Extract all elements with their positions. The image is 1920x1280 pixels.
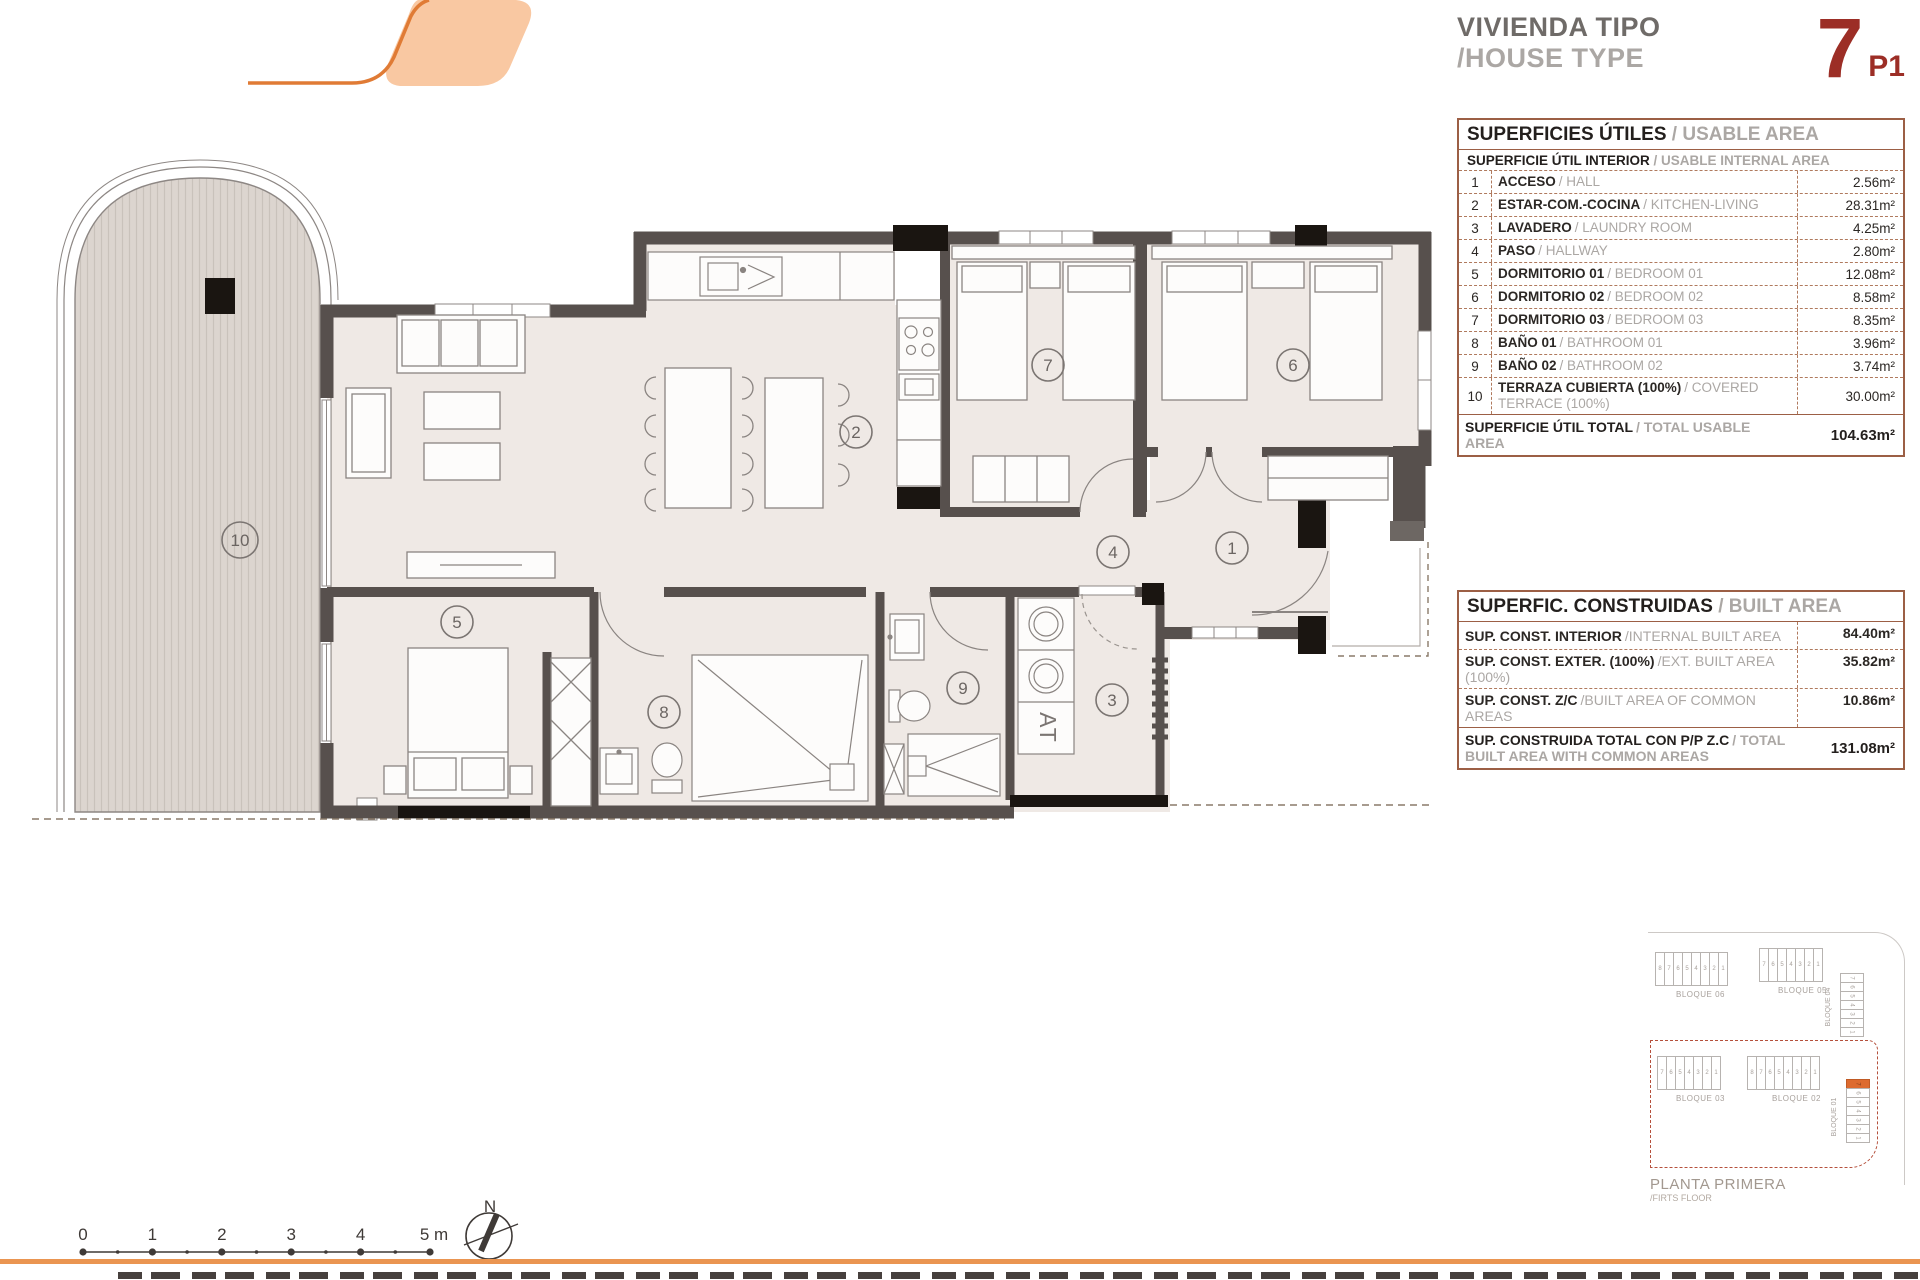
scale-bar: 0 1 2 3 4 5 m (78, 1225, 448, 1256)
usable-area-rows: 1 ACCESO/ HALL 2.56m² 2 ESTAR-COM.-COCIN… (1459, 171, 1903, 414)
svg-text:5 m: 5 m (420, 1225, 448, 1244)
house-type-floor: P1 (1868, 52, 1905, 84)
svg-text:3: 3 (286, 1225, 295, 1244)
built-area-header: SUPERFIC. CONSTRUIDAS / BUILT AREA (1459, 592, 1903, 622)
svg-text:8: 8 (659, 703, 668, 722)
table-row: 2 ESTAR-COM.-COCINA/ KITCHEN-LIVING 28.3… (1459, 193, 1903, 216)
row-name: SUP. CONST. EXTER. (100%)/EXT. BUILT ARE… (1459, 650, 1797, 688)
row-value: 30.00m² (1797, 378, 1903, 414)
svg-text:10: 10 (231, 531, 250, 550)
row-name: PASO/ HALLWAY (1492, 241, 1797, 261)
row-name: BAÑO 02/ BATHROOM 02 (1492, 356, 1797, 376)
row-value: 3.96m² (1797, 332, 1903, 354)
dresser (973, 456, 1069, 502)
unit-cell: 1 (1846, 1133, 1870, 1143)
block-03-label: BLOQUE 03 (1676, 1094, 1725, 1103)
house-type-label-en: /HOUSE TYPE (1457, 43, 1661, 74)
row-name: ESTAR-COM.-COCINA/ KITCHEN-LIVING (1492, 195, 1797, 215)
floor-name: PLANTA PRIMERA /FIRTS FLOOR (1650, 1176, 1786, 1203)
stove (899, 318, 939, 370)
block-06-label: BLOQUE 06 (1676, 990, 1725, 999)
row-number: 3 (1459, 217, 1492, 239)
keyplan-block-04: 7654321 (1840, 974, 1864, 1037)
toilet (652, 743, 682, 777)
row-name: BAÑO 01/ BATHROOM 01 (1492, 333, 1797, 353)
keyplan-block-05: 7654321 (1760, 948, 1823, 982)
row-value: 2.80m² (1797, 240, 1903, 262)
svg-text:0: 0 (78, 1225, 87, 1244)
house-type-number: 7 (1817, 12, 1864, 84)
table-row: 6 DORMITORIO 02/ BEDROOM 02 8.58m² (1459, 285, 1903, 308)
table-row: 4 PASO/ HALLWAY 2.80m² (1459, 239, 1903, 262)
built-area-table: SUPERFIC. CONSTRUIDAS / BUILT AREA SUP. … (1457, 590, 1905, 770)
row-name: ACCESO/ HALL (1492, 172, 1797, 192)
dining-table (665, 368, 731, 508)
usable-area-table: SUPERFICIES ÚTILES / USABLE AREA SUPERFI… (1457, 118, 1905, 457)
svg-text:3: 3 (1107, 691, 1116, 710)
built-area-rows: SUP. CONST. INTERIOR/INTERNAL BUILT AREA… (1459, 622, 1903, 727)
table-row: 1 ACCESO/ HALL 2.56m² (1459, 171, 1903, 193)
usable-area-total-row: SUPERFICIE ÚTIL TOTAL/ TOTAL USABLE AREA… (1459, 414, 1903, 455)
svg-text:6: 6 (1288, 356, 1297, 375)
svg-text:7: 7 (1043, 356, 1052, 375)
table-row: 9 BAÑO 02/ BATHROOM 02 3.74m² (1459, 354, 1903, 377)
svg-text:1: 1 (148, 1225, 157, 1244)
usable-header-es: SUPERFICIES ÚTILES (1467, 124, 1667, 145)
row-value: 4.25m² (1797, 217, 1903, 239)
svg-text:2: 2 (217, 1225, 226, 1244)
unit-cell: 1 (1840, 1027, 1864, 1037)
row-value: 3.74m² (1797, 355, 1903, 377)
toilet (898, 691, 930, 721)
footer-orange-rule (0, 1259, 1920, 1264)
svg-text:4: 4 (1108, 543, 1117, 562)
table-row: 3 LAVADERO/ LAUNDRY ROOM 4.25m² (1459, 216, 1903, 239)
footer-cropped-text (118, 1272, 1918, 1279)
usable-area-subheader: SUPERFICIE ÚTIL INTERIOR / USABLE INTERN… (1459, 150, 1903, 171)
block-01-label: BLOQUE 01 (1831, 1082, 1841, 1152)
row-number: 8 (1459, 332, 1492, 354)
built-total-value: 131.08m² (1793, 740, 1903, 757)
row-value: 2.56m² (1797, 171, 1903, 193)
row-value: 84.40m² (1797, 622, 1903, 649)
keyplan-block-06: 87654321 (1656, 952, 1728, 986)
brand-logo (248, 0, 531, 86)
keyplan-block-03: 7654321 (1658, 1056, 1721, 1090)
row-value: 28.31m² (1797, 194, 1903, 216)
site-key-plan: 87654321 BLOQUE 06 7654321 BLOQUE 05 765… (1648, 930, 1920, 1215)
table-row: 5 DORMITORIO 01/ BEDROOM 01 12.08m² (1459, 262, 1903, 285)
unit-cell: 1 (1718, 952, 1728, 986)
block-02-label: BLOQUE 02 (1772, 1094, 1821, 1103)
row-number: 4 (1459, 240, 1492, 262)
keyplan-block-02: 87654321 (1748, 1056, 1820, 1090)
row-value: 12.08m² (1797, 263, 1903, 285)
svg-text:5: 5 (452, 613, 461, 632)
keyplan-block-01: 7654321 (1846, 1080, 1870, 1143)
svg-text:4: 4 (356, 1225, 365, 1244)
table-row: SUP. CONST. INTERIOR/INTERNAL BUILT AREA… (1459, 622, 1903, 649)
row-number: 9 (1459, 355, 1492, 377)
row-value: 10.86m² (1797, 689, 1903, 727)
row-name: TERRAZA CUBIERTA (100%)/ COVERED TERRACE… (1492, 378, 1797, 414)
row-name: DORMITORIO 01/ BEDROOM 01 (1492, 264, 1797, 284)
block-05-label: BLOQUE 05 (1778, 986, 1827, 995)
terrace-column (205, 278, 235, 314)
nightstand (1030, 262, 1060, 288)
row-value: 8.58m² (1797, 286, 1903, 308)
floor-name-en: /FIRTS FLOOR (1650, 1193, 1786, 1203)
row-number: 7 (1459, 309, 1492, 331)
row-number: 2 (1459, 194, 1492, 216)
row-name: DORMITORIO 03/ BEDROOM 03 (1492, 310, 1797, 330)
svg-text:1: 1 (1227, 539, 1236, 558)
entry-step (1390, 521, 1424, 541)
bedroom-01-furniture (384, 648, 591, 806)
at-label: AT (1035, 712, 1061, 744)
row-name: DORMITORIO 02/ BEDROOM 02 (1492, 287, 1797, 307)
usable-area-header: SUPERFICIES ÚTILES / USABLE AREA (1459, 120, 1903, 150)
wardrobe (551, 658, 591, 806)
usable-header-en: / USABLE AREA (1667, 124, 1819, 145)
floor-name-es: PLANTA PRIMERA (1650, 1176, 1786, 1193)
row-number: 5 (1459, 263, 1492, 285)
kitchen-island (765, 378, 823, 508)
house-type-label-es: VIVIENDA TIPO (1457, 12, 1661, 43)
svg-text:N: N (484, 1197, 496, 1216)
unit-cell: 1 (1711, 1056, 1721, 1090)
table-row: SUP. CONST. EXTER. (100%)/EXT. BUILT ARE… (1459, 649, 1903, 688)
table-row: 10 TERRAZA CUBIERTA (100%)/ COVERED TERR… (1459, 377, 1903, 414)
row-name: SUP. CONST. Z/C/BUILT AREA OF COMMON ARE… (1459, 689, 1797, 727)
table-row: SUP. CONST. Z/C/BUILT AREA OF COMMON ARE… (1459, 688, 1903, 727)
page: AT 1 2 3 4 5 6 7 8 9 10 (0, 0, 1920, 1280)
row-name: SUP. CONST. INTERIOR/INTERNAL BUILT AREA (1459, 625, 1797, 647)
table-row: 7 DORMITORIO 03/ BEDROOM 03 8.35m² (1459, 308, 1903, 331)
title-block: VIVIENDA TIPO /HOUSE TYPE 7 P1 (1457, 12, 1905, 84)
row-number: 10 (1459, 378, 1492, 414)
unit-cell: 1 (1810, 1056, 1820, 1090)
svg-text:2: 2 (851, 423, 860, 442)
row-name: LAVADERO/ LAUNDRY ROOM (1492, 218, 1797, 238)
block-04-label: BLOQUE 04 (1825, 972, 1835, 1042)
row-number: 6 (1459, 286, 1492, 308)
entry-step-wall (1393, 446, 1423, 526)
svg-text:9: 9 (958, 679, 967, 698)
north-arrow-icon: N (464, 1197, 518, 1259)
row-value: 8.35m² (1797, 309, 1903, 331)
usable-total-value: 104.63m² (1793, 427, 1903, 444)
row-value: 35.82m² (1797, 650, 1903, 688)
nightstand (1252, 262, 1304, 288)
row-number: 1 (1459, 171, 1492, 193)
table-row: 8 BAÑO 01/ BATHROOM 01 3.96m² (1459, 331, 1903, 354)
unit-cell: 1 (1813, 948, 1823, 982)
built-area-total-row: SUP. CONSTRUIDA TOTAL CON P/P Z.C/ TOTAL… (1459, 727, 1903, 768)
